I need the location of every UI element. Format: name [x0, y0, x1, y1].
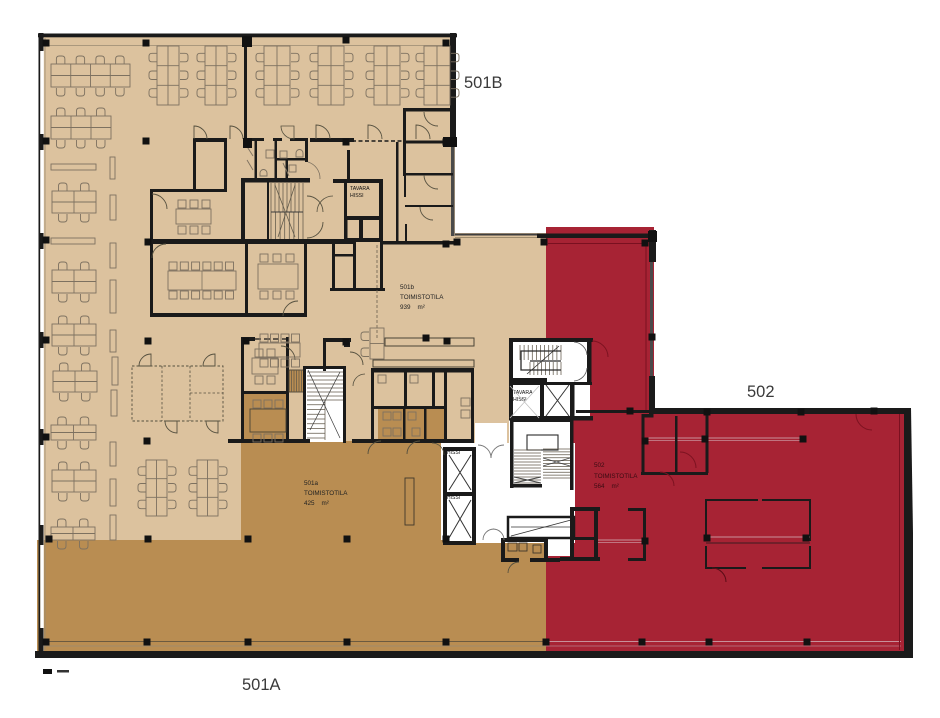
svg-text:502: 502 [747, 383, 775, 401]
svg-text:501a: 501a [304, 480, 319, 487]
svg-text:TOIMISTOTILA: TOIMISTOTILA [594, 473, 638, 480]
svg-text:501b: 501b [400, 284, 415, 291]
svg-text:TOIMISTOTILA: TOIMISTOTILA [400, 294, 444, 301]
svg-text:502: 502 [594, 462, 605, 469]
svg-text:501A: 501A [242, 676, 281, 694]
svg-text:TOIMISTOTILA: TOIMISTOTILA [304, 490, 348, 497]
svg-text:425 m²: 425 m² [304, 500, 329, 507]
svg-text:564 m²: 564 m² [594, 483, 619, 490]
svg-text:501B: 501B [464, 74, 503, 92]
svg-text:HISSI: HISSI [447, 450, 460, 456]
svg-text:HISSI: HISSI [447, 495, 460, 501]
svg-text:HISSI: HISSI [350, 193, 364, 199]
svg-text:TAVARA: TAVARA [350, 186, 370, 192]
svg-text:939 m²: 939 m² [400, 304, 425, 311]
